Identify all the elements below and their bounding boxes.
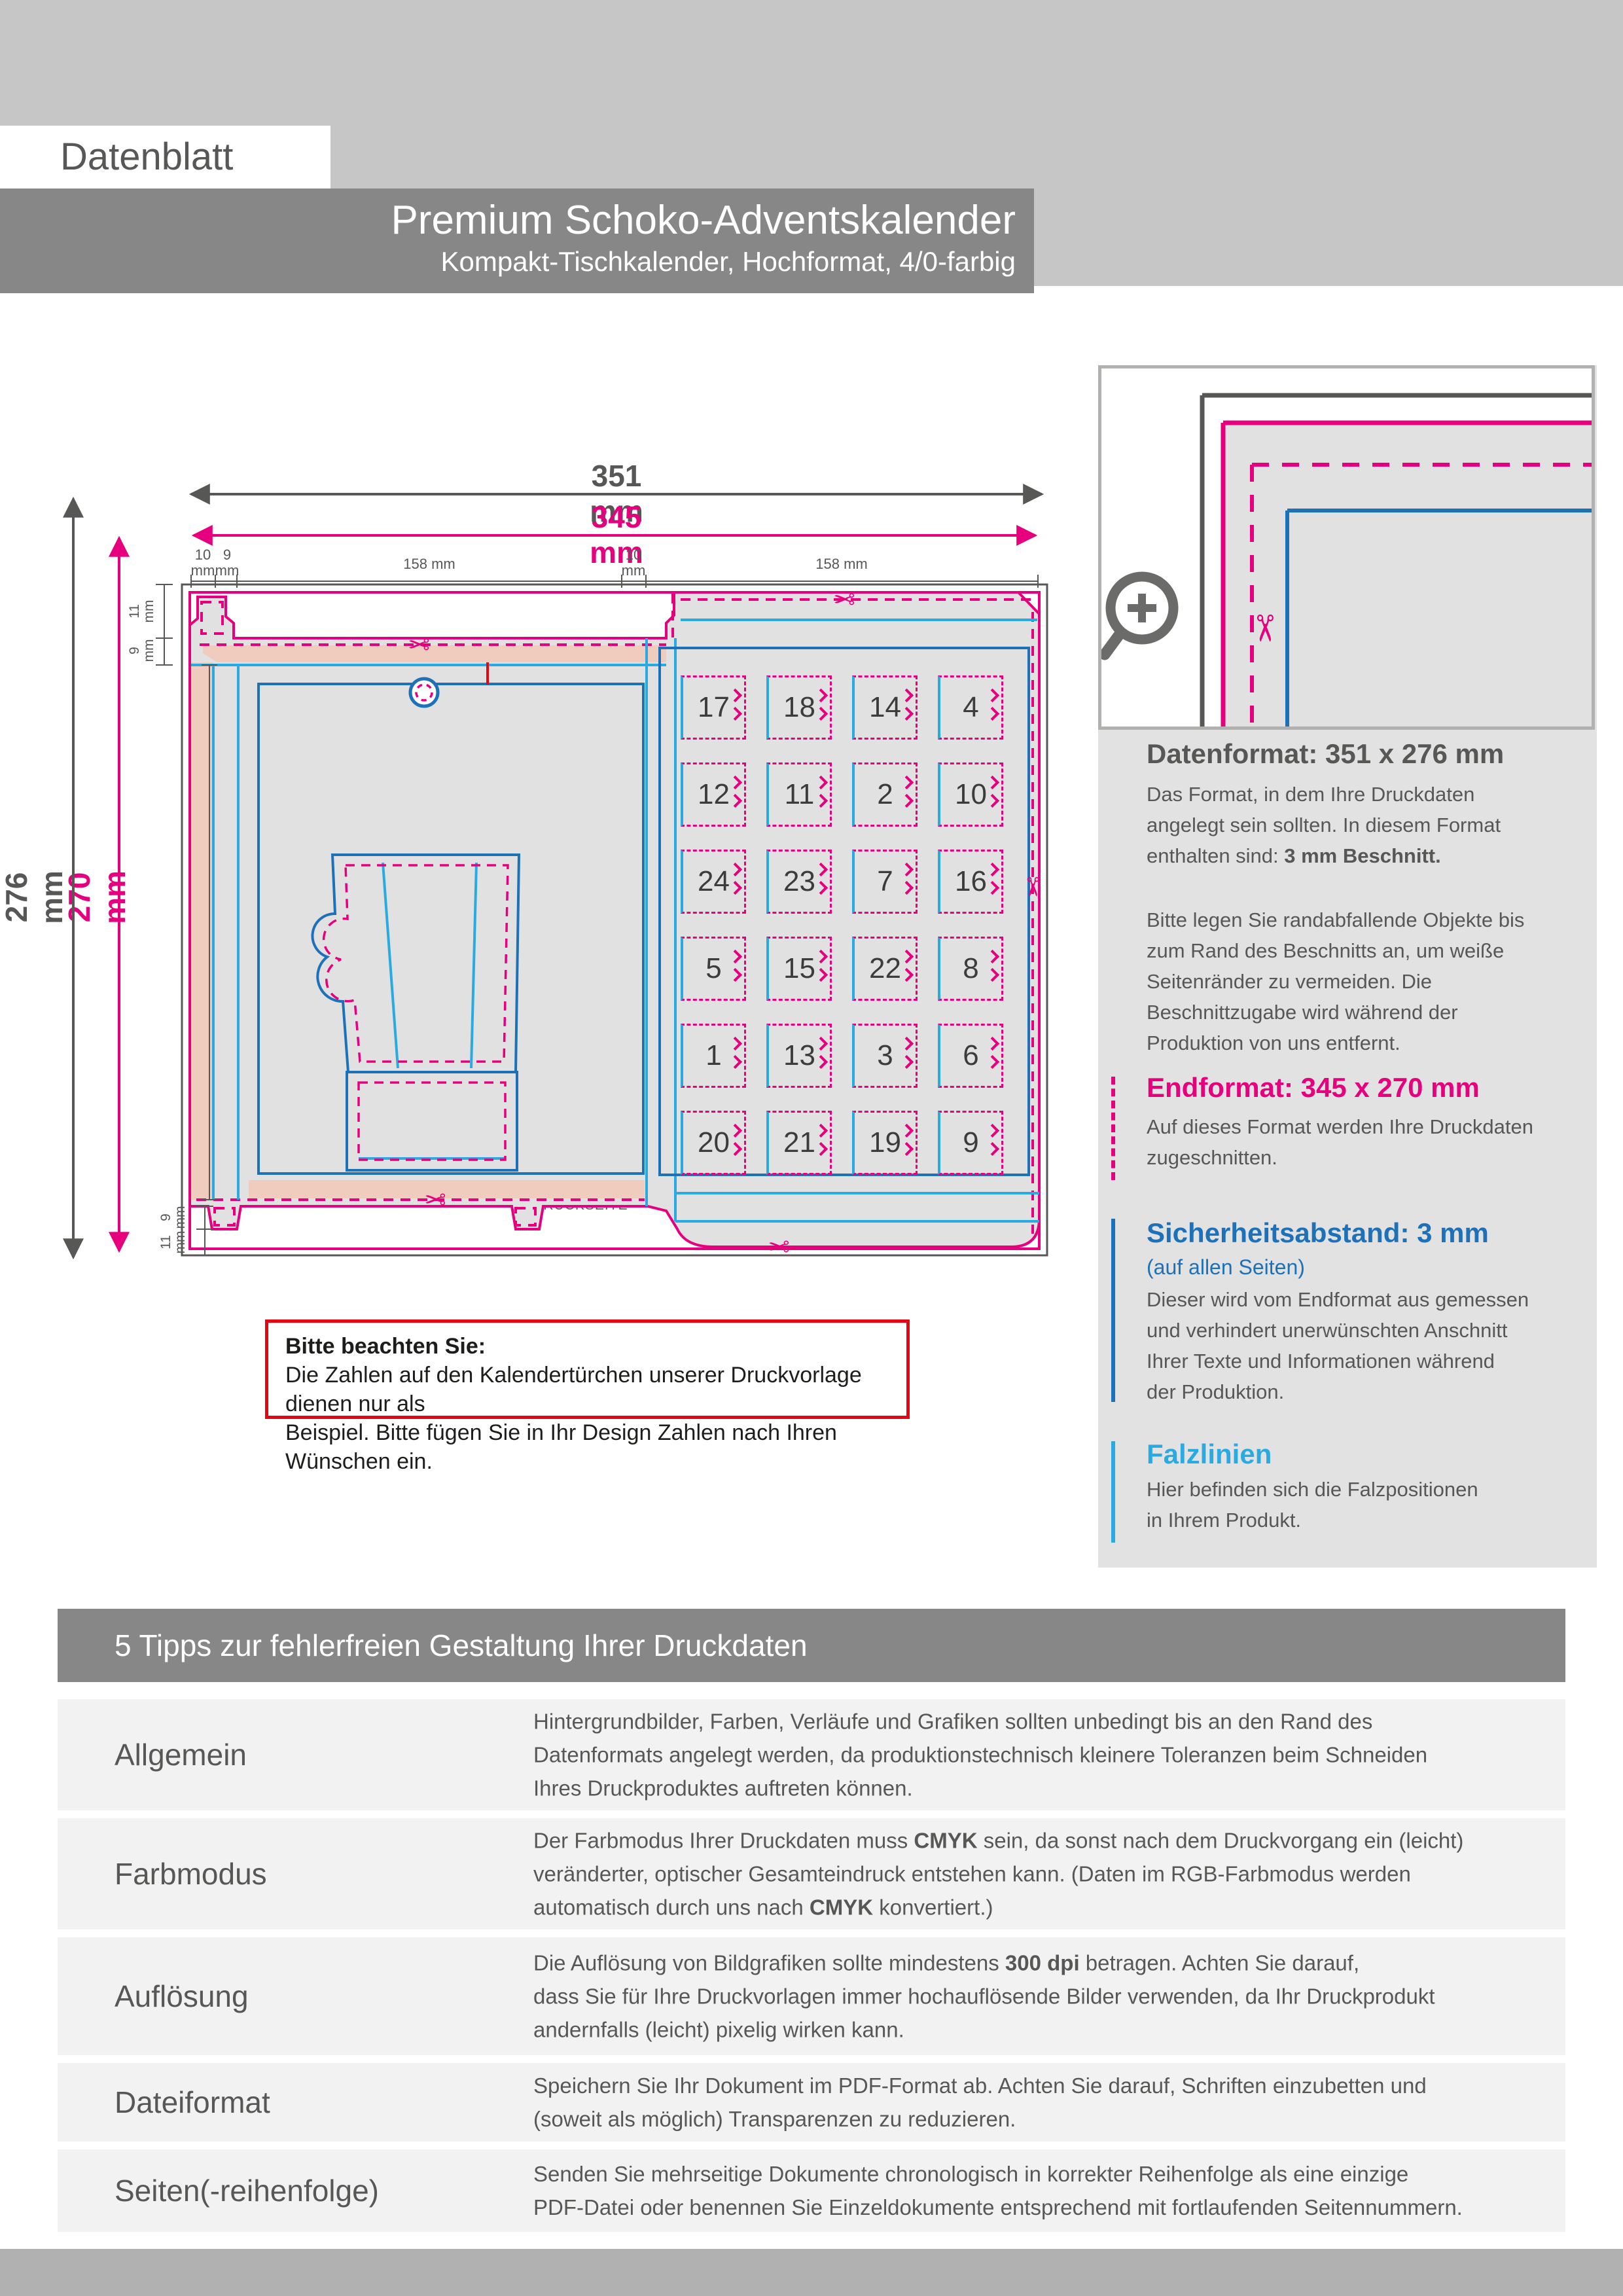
scissors-icon: ✂ <box>424 1186 446 1215</box>
note-body: Die Zahlen auf den Kalendertürchen unser… <box>285 1363 862 1474</box>
calendar-door: 19 <box>852 1111 918 1175</box>
endformat-title: Endformat: 345 x 270 mm <box>1147 1072 1480 1103</box>
calendar-door: 3 <box>852 1024 918 1088</box>
falzlinien-body: Hier befinden sich die Falzpositionen in… <box>1147 1474 1572 1535</box>
calendar-door: 9 <box>938 1111 1003 1175</box>
falzlinien-title: Falzlinien <box>1147 1439 1272 1470</box>
calendar-door: 4 <box>938 675 1003 740</box>
scissors-icon: ✂ <box>1018 876 1046 898</box>
calendar-door: 10 <box>938 762 1003 827</box>
zoom-detail-box: ✂ <box>1098 365 1595 730</box>
datenformat-title: Datenformat: 351 x 276 mm <box>1147 738 1504 770</box>
calendar-door: 17 <box>681 675 746 740</box>
product-subtitle: Kompakt-Tischkalender, Hochformat, 4/0-f… <box>0 243 1034 278</box>
footer-band <box>0 2249 1623 2296</box>
scissors-icon: ✂ <box>408 631 430 660</box>
datenformat-body-2: Bitte legen Sie randabfallende Objekte b… <box>1147 905 1572 1058</box>
sicherheit-subtitle: (auf allen Seiten) <box>1147 1251 1305 1283</box>
note-box: Bitte beachten Sie: Die Zahlen auf den K… <box>265 1319 910 1419</box>
tip-body: Die Auflösung von Bildgrafiken sollte mi… <box>533 1946 1554 2047</box>
tip-label: Auflösung <box>115 1979 249 2014</box>
tip-body: Senden Sie mehrseitige Dokumente chronol… <box>533 2157 1554 2224</box>
calendar-door: 11 <box>766 762 832 827</box>
tip-row-farbmodus: FarbmodusDer Farbmodus Ihrer Druckdaten … <box>58 1818 1565 1929</box>
tip-label: Allgemein <box>115 1737 247 1772</box>
calendar-door: 13 <box>766 1024 832 1088</box>
tip-row-seiten-reihenfolge-: Seiten(-reihenfolge)Senden Sie mehrseiti… <box>58 2149 1565 2232</box>
calendar-door: 21 <box>766 1111 832 1175</box>
calendar-door: 22 <box>852 937 918 1001</box>
tip-row-dateiformat: DateiformatSpeichern Sie Ihr Dokument im… <box>58 2063 1565 2142</box>
datenformat-body-1: Das Format, in dem Ihre Druckdaten angel… <box>1147 779 1572 871</box>
tip-row-allgemein: AllgemeinHintergrundbilder, Farben, Verl… <box>58 1699 1565 1810</box>
bleed-top-band <box>203 645 666 662</box>
calendar-door: 15 <box>766 937 832 1001</box>
note-title: Bitte beachten Sie: <box>285 1334 486 1359</box>
calendar-door: 2 <box>852 762 918 827</box>
tip-label: Farbmodus <box>115 1856 267 1892</box>
tip-row-aufl-sung: AuflösungDie Auflösung von Bildgrafiken … <box>58 1937 1565 2055</box>
datasheet-page: Datenblatt Premium Schoko-Adventskalende… <box>0 0 1623 2296</box>
tips-banner: 5 Tipps zur fehlerfreien Gestaltung Ihre… <box>58 1609 1565 1682</box>
calendar-door: 5 <box>681 937 746 1001</box>
hole-outer <box>410 679 438 706</box>
calendar-door: 23 <box>766 850 832 914</box>
calendar-door: 24 <box>681 850 746 914</box>
calendar-door: 14 <box>852 675 918 740</box>
tip-label: Seiten(-reihenfolge) <box>115 2173 379 2208</box>
falzlinien-accent <box>1111 1441 1115 1543</box>
calendar-door: 7 <box>852 850 918 914</box>
sicherheit-body: Dieser wird vom Endformat aus gemessen u… <box>1147 1284 1572 1407</box>
calendar-door: 1 <box>681 1024 746 1088</box>
tip-body: Der Farbmodus Ihrer Druckdaten muss CMYK… <box>533 1824 1554 1924</box>
sicherheit-title: Sicherheitsabstand: 3 mm <box>1147 1217 1489 1249</box>
tip-body: Hintergrundbilder, Farben, Verläufe und … <box>533 1705 1554 1805</box>
scissors-icon: ✂ <box>833 586 855 615</box>
calendar-door: 12 <box>681 762 746 827</box>
scissors-icon: ✂ <box>1244 613 1285 644</box>
product-title: Premium Schoko-Adventskalender <box>0 188 1034 243</box>
calendar-door: 6 <box>938 1024 1003 1088</box>
datenblatt-label: Datenblatt <box>0 126 330 188</box>
tip-label: Dateiformat <box>115 2085 270 2120</box>
endformat-body: Auf dieses Format werden Ihre Druckdaten… <box>1147 1111 1572 1173</box>
datenblatt-label-box: Datenblatt <box>0 126 330 188</box>
calendar-door: 16 <box>938 850 1003 914</box>
calendar-door: 8 <box>938 937 1003 1001</box>
product-banner: Premium Schoko-Adventskalender Kompakt-T… <box>0 188 1034 293</box>
tip-body: Speichern Sie Ihr Dokument im PDF-Format… <box>533 2069 1554 2136</box>
zoom-detail-graphic: ✂ <box>1101 368 1592 726</box>
scissors-icon: ✂ <box>768 1233 790 1262</box>
calendar-door: 18 <box>766 675 832 740</box>
calendar-door: 20 <box>681 1111 746 1175</box>
tips-title: 5 Tipps zur fehlerfreien Gestaltung Ihre… <box>58 1609 1565 1682</box>
